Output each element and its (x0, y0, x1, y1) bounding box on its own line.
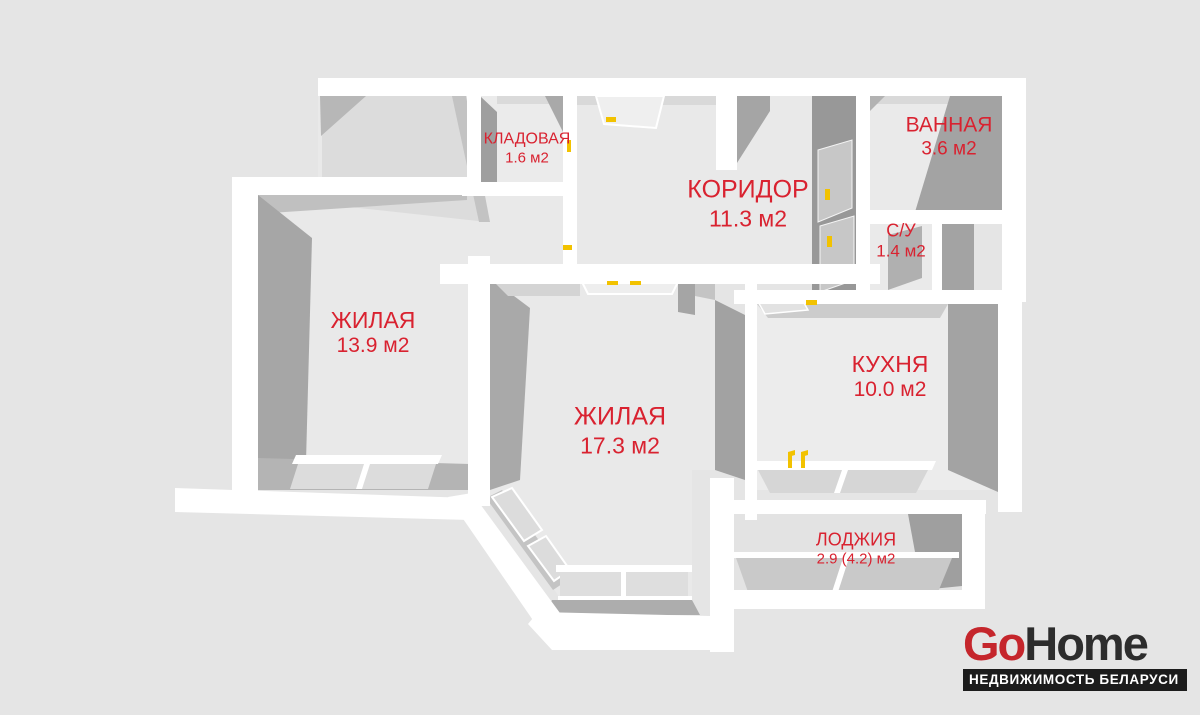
floorplan-page: КЛАДОВАЯ 1.6 м2 КОРИДОР 11.3 м2 ВАННАЯ 3… (0, 0, 1200, 715)
floorplan-drawing (0, 0, 1200, 715)
